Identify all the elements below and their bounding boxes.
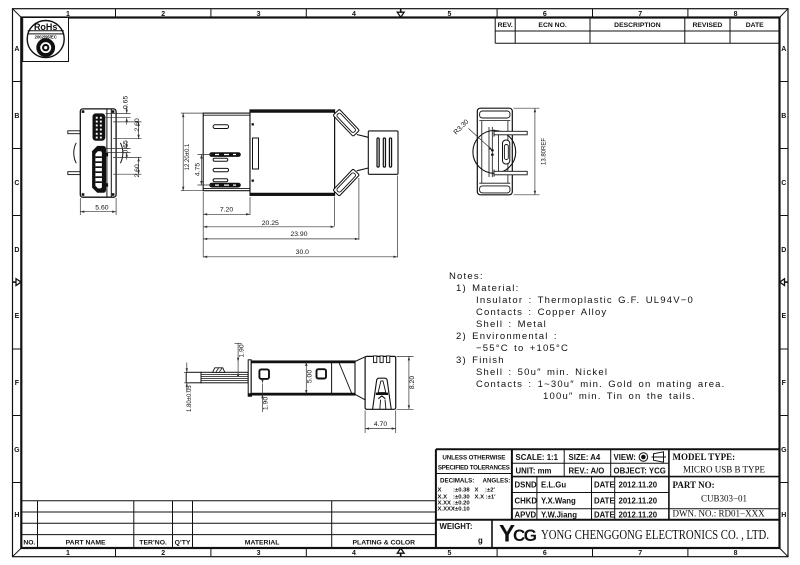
svg-text:2) Environmental :: 2) Environmental :	[456, 331, 558, 342]
svg-text:5.00: 5.00	[307, 370, 314, 383]
svg-text:A: A	[14, 46, 19, 53]
svg-text:1) Material:: 1) Material:	[456, 283, 519, 294]
svg-text:5: 5	[447, 11, 451, 18]
svg-text:Y.X.Wang: Y.X.Wang	[541, 497, 576, 506]
svg-text:MATERIAL: MATERIAL	[245, 539, 280, 546]
svg-text:C: C	[14, 180, 19, 187]
svg-text:H: H	[781, 512, 786, 519]
svg-text:F: F	[15, 380, 20, 387]
svg-text:2012.11.20: 2012.11.20	[619, 481, 658, 490]
svg-text:PART NO:: PART NO:	[673, 480, 715, 490]
svg-text:4: 4	[352, 11, 356, 18]
svg-text:Notes:: Notes:	[449, 271, 484, 282]
svg-text:G: G	[781, 447, 787, 454]
svg-text:DWN. NO.: RD01−XXX: DWN. NO.: RD01−XXX	[673, 509, 766, 519]
svg-text:H: H	[14, 512, 19, 519]
svg-text:G: G	[14, 447, 20, 454]
svg-text:OBJECT: YCG: OBJECT: YCG	[614, 467, 666, 476]
svg-text:2: 2	[161, 550, 165, 557]
svg-text:3: 3	[257, 11, 261, 18]
svg-text:2.60: 2.60	[134, 118, 141, 131]
svg-text:X: X	[438, 488, 442, 494]
svg-text:ANGLES:: ANGLES:	[483, 478, 511, 485]
svg-text:PLATING & COLOR: PLATING & COLOR	[353, 539, 416, 546]
svg-text:Shell : 50u″ min. Nickel: Shell : 50u″ min. Nickel	[476, 367, 608, 378]
svg-text:A: A	[781, 46, 786, 53]
svg-text:E.L.Gu: E.L.Gu	[541, 481, 566, 490]
svg-text:Contacts : Copper Alloy: Contacts : Copper Alloy	[476, 307, 607, 318]
svg-text:DATE: DATE	[594, 481, 615, 490]
svg-text:5.60: 5.60	[95, 205, 108, 212]
svg-text:MICRO USB B TYPE: MICRO USB B TYPE	[683, 465, 766, 475]
svg-text:SIZE: A4: SIZE: A4	[569, 453, 601, 462]
svg-text:Contacts : 1~30u″ min. Gold on: Contacts : 1~30u″ min. Gold on mating ar…	[476, 379, 726, 390]
svg-text:g: g	[478, 536, 483, 545]
svg-text:8: 8	[734, 550, 738, 557]
svg-text:D: D	[14, 247, 19, 254]
svg-text:5: 5	[447, 550, 451, 557]
svg-text:SCALE: 1:1: SCALE: 1:1	[516, 453, 559, 462]
svg-text:4.70: 4.70	[374, 421, 387, 428]
svg-text::±2′: :±2′	[485, 488, 495, 494]
svg-text:100u″ min. Tin on the tails.: 100u″ min. Tin on the tails.	[543, 391, 696, 402]
svg-text:VIEW:: VIEW:	[614, 453, 636, 462]
svg-text:8.20: 8.20	[409, 376, 416, 389]
svg-text:1.90: 1.90	[263, 397, 270, 410]
svg-text:X: X	[475, 488, 479, 494]
svg-text:F: F	[782, 380, 787, 387]
svg-text:SPECIFIED TOLERANCES: SPECIFIED TOLERANCES	[438, 465, 510, 472]
svg-text:WEIGHT:: WEIGHT:	[440, 522, 473, 531]
svg-text:CUB303−01: CUB303−01	[701, 494, 747, 504]
svg-text:NO.: NO.	[23, 539, 35, 546]
svg-text:2.60: 2.60	[134, 164, 141, 177]
svg-text:X.X :±1′: X.X :±1′	[475, 495, 497, 501]
svg-text:UNLESS OTHERWISE: UNLESS OTHERWISE	[442, 455, 505, 462]
svg-text:MODEL TYPE:: MODEL TYPE:	[673, 452, 736, 462]
svg-text:ECN NO.: ECN NO.	[538, 22, 566, 29]
svg-text:REV.: A/O: REV.: A/O	[569, 467, 605, 476]
svg-text::±0.10: :±0.10	[453, 507, 470, 513]
svg-text::±0.38: :±0.38	[453, 488, 470, 494]
svg-text:7: 7	[638, 11, 642, 18]
svg-text:APVD: APVD	[515, 511, 537, 520]
svg-text:DSND: DSND	[515, 481, 537, 490]
svg-text:CG: CG	[513, 526, 537, 545]
svg-text:DATE: DATE	[746, 22, 764, 29]
svg-text:2012.11.20: 2012.11.20	[619, 497, 658, 506]
svg-text:20.25: 20.25	[262, 220, 279, 227]
svg-text:UNIT: mm: UNIT: mm	[516, 467, 552, 476]
svg-text:8: 8	[734, 11, 738, 18]
svg-text:1: 1	[66, 550, 70, 557]
svg-text:TER’NO.: TER’NO.	[139, 539, 167, 546]
svg-text:Y.W.Jiang: Y.W.Jiang	[541, 511, 577, 520]
svg-text:3) Finish: 3) Finish	[456, 355, 505, 366]
svg-text:B: B	[14, 113, 19, 120]
svg-text:1: 1	[66, 11, 70, 18]
svg-text:13.80REF: 13.80REF	[542, 138, 548, 165]
svg-text:YONG CHENGGONG ELECTRONICS CO.: YONG CHENGGONG ELECTRONICS CO. , LTD.	[541, 528, 769, 543]
svg-text:DECIMALS:: DECIMALS:	[440, 478, 474, 485]
svg-text:2: 2	[161, 11, 165, 18]
svg-text:B: B	[781, 113, 786, 120]
svg-text:0.65: 0.65	[123, 140, 130, 153]
svg-text:0.65: 0.65	[123, 96, 130, 109]
svg-text:1.80±0.05: 1.80±0.05	[187, 385, 193, 412]
svg-text:DATE: DATE	[594, 497, 615, 506]
svg-text:4: 4	[352, 550, 356, 557]
svg-text:Q’TY: Q’TY	[175, 539, 191, 546]
svg-text:12.20±0.1: 12.20±0.1	[185, 143, 191, 170]
svg-text:23.90: 23.90	[290, 231, 307, 238]
svg-text:−55°C to +105°C: −55°C to +105°C	[476, 343, 569, 354]
svg-text:CHKD: CHKD	[515, 497, 538, 506]
svg-text:C: C	[781, 180, 786, 187]
svg-text:Shell : Metal: Shell : Metal	[476, 319, 547, 330]
svg-text:Insulator : Thermoplastic G.F.: Insulator : Thermoplastic G.F. UL94V−0	[476, 295, 694, 306]
svg-text:PART NAME: PART NAME	[66, 539, 106, 546]
svg-text:DESCRIPTION: DESCRIPTION	[614, 22, 661, 29]
svg-text:DATE: DATE	[594, 511, 615, 520]
svg-text:3: 3	[257, 550, 261, 557]
svg-text:REV.: REV.	[498, 22, 513, 29]
svg-text:E: E	[781, 313, 786, 320]
svg-text:REVISED: REVISED	[692, 22, 722, 29]
svg-text:E: E	[15, 313, 20, 320]
svg-text:4.75: 4.75	[195, 163, 202, 176]
svg-text:7: 7	[638, 550, 642, 557]
svg-text:6: 6	[543, 11, 547, 18]
svg-text:2012.11.20: 2012.11.20	[619, 511, 658, 520]
svg-text:D: D	[781, 247, 786, 254]
svg-text:7.20: 7.20	[220, 207, 233, 214]
svg-text:6: 6	[543, 550, 547, 557]
svg-text:1.90: 1.90	[238, 344, 245, 357]
svg-text:30.0: 30.0	[296, 249, 309, 256]
